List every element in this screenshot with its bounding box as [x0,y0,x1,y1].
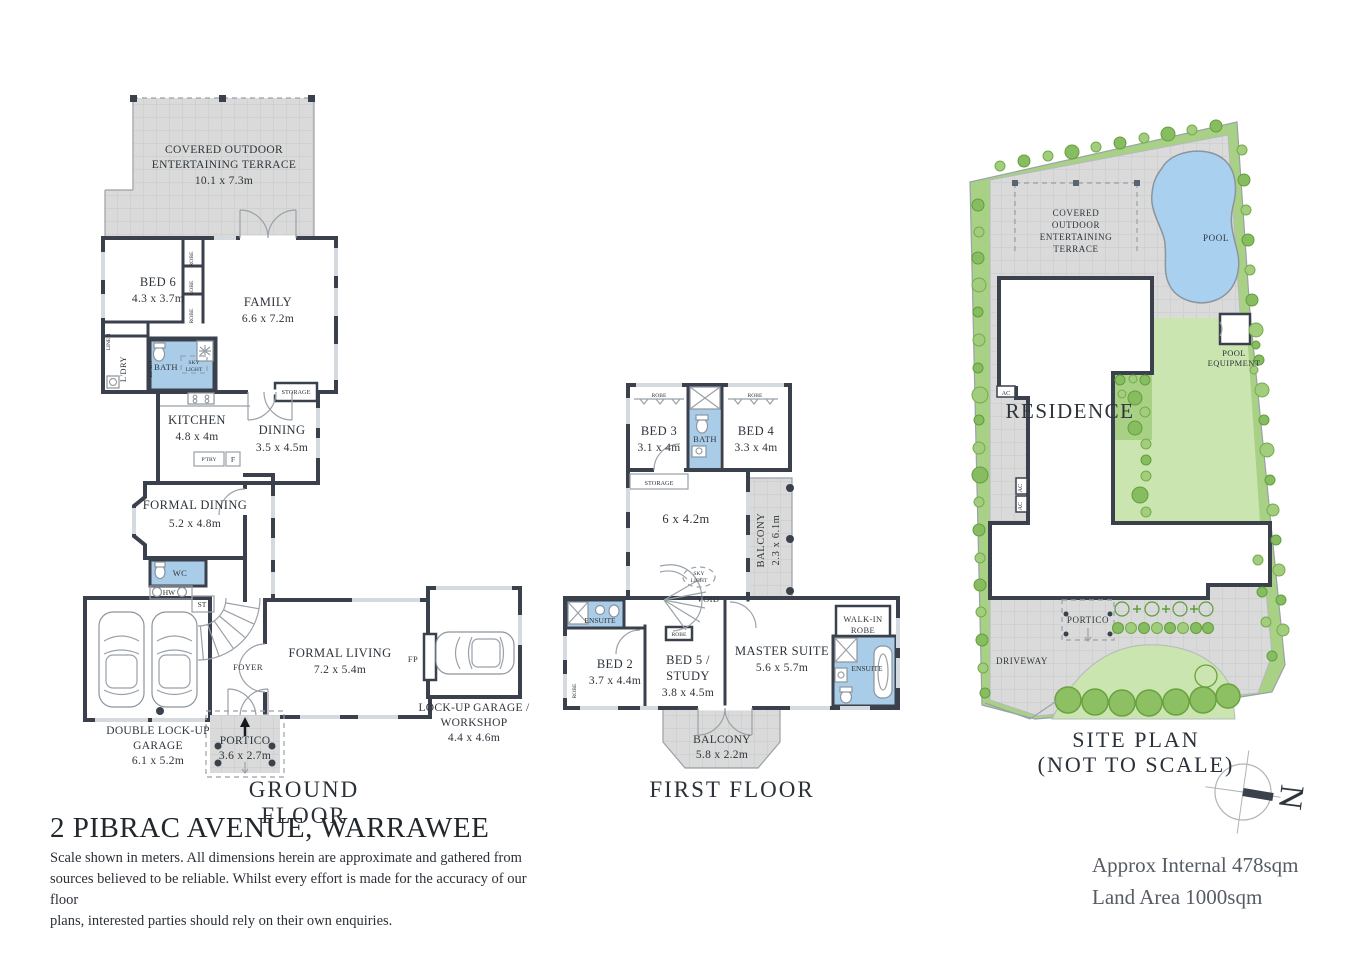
dining-label: DINING [259,423,306,437]
front-balcony-label: BALCONY [693,734,751,746]
pool-equipment-label: EQUIPMENT [1208,358,1261,368]
site-terrace-label: ENTERTAINING [1040,232,1112,242]
bed5-label: BED 5 / [666,653,710,667]
kitchen-dims: 4.8 x 4m [176,431,219,443]
bath-label: BATH [693,434,717,444]
car-icon [99,612,144,707]
fridge-label: F [231,455,235,464]
formal-living-dims: 7.2 x 5.4m [314,664,366,676]
fireplace-icon [424,634,436,680]
first-floor-walls [565,385,898,768]
disclaimer-line: Scale shown in meters. All dimensions he… [50,848,550,869]
land-area: Land Area 1000sqm [1092,882,1298,914]
ground-floor-plan: COVERED OUTDOOR ENTERTAINING TERRACE 10.… [85,95,530,777]
first-floor-plan: ROBE ROBE BED 3 3.1 x 4m BATH BED 4 3.3 … [565,385,898,768]
skylight-label: LIGHT [691,578,708,584]
site-plan-title: SITE PLAN [1036,727,1236,753]
storage-label: STORAGE [282,389,311,396]
kitchen-label: KITCHEN [168,413,226,427]
walk-in-robe-label: WALK-IN [843,614,882,624]
wc-label: WC [173,568,188,578]
formal-dining-label: FORMAL DINING [143,498,247,512]
driveway-label: DRIVEWAY [996,656,1048,666]
robe-label: ROBE [189,280,195,296]
portico-dims: 3.6 x 2.7m [219,750,271,762]
bed5-label: STUDY [666,669,710,683]
site-terrace-label: OUTDOOR [1052,220,1100,230]
car-icon [436,632,514,674]
landing-dims: 6 x 4.2m [662,512,709,526]
linen-label: LINEN [148,361,154,378]
terrace-label: ENTERTAINING TERRACE [152,159,296,171]
side-balcony-dims: 2.3 x 6.1m [771,515,782,566]
workshop-garage-label: WORKSHOP [441,717,508,729]
master-label: MASTER SUITE [735,644,829,658]
pool-equipment-shed [1220,314,1250,344]
ensuite-label: ENSUITE [851,664,883,673]
family-label: FAMILY [244,295,292,309]
ac-label: AC [1002,390,1011,397]
double-garage-label: GARAGE [133,740,183,752]
walk-in-robe-label: ROBE [851,625,875,635]
double-garage-label: DOUBLE LOCK-UP [106,725,210,737]
storage-label: STORAGE [645,480,674,487]
skylight-label: SKY [188,360,199,366]
double-garage-dims: 6.1 x 5.2m [132,755,184,767]
void-label: VOID [697,594,720,604]
robe-label: ROBE [672,632,688,638]
ac-label: AC [1017,502,1024,511]
pool-equipment-label: POOL [1222,348,1246,358]
skylight-label: LIGHT [186,367,203,373]
first-floor-title: FIRST FLOOR [632,777,832,803]
ensuite-label: ENSUITE [584,616,616,625]
family-dims: 6.6 x 7.2m [242,313,294,325]
formal-dining-dims: 5.2 x 4.8m [169,518,221,530]
robe-label: ROBE [748,393,764,399]
property-address: 2 PIBRAC AVENUE, WARRAWEE [50,812,489,845]
floorplan-page: COVERED OUTDOOR ENTERTAINING TERRACE 10.… [0,0,1358,960]
foyer-label: FOYER [233,662,263,672]
robe-label: ROBE [652,393,668,399]
bed5-dims: 3.8 x 4.5m [662,687,714,699]
workshop-garage-dims: 4.4 x 4.6m [448,732,500,744]
terrace-label: COVERED OUTDOOR [165,144,283,156]
front-balcony-dims: 5.8 x 2.2m [696,749,748,761]
car-icon [152,612,197,707]
pantry-label: P'TRY [202,457,217,463]
robe-label: ROBE [572,683,578,699]
hw-label: HW [163,588,176,597]
robe-label: ROBE [189,251,195,267]
internal-area: Approx Internal 478sqm [1092,850,1298,882]
formal-living-label: FORMAL LIVING [289,646,392,660]
disclaimer-line: sources believed to be reliable. Whilst … [50,869,550,911]
site-terrace-label: TERRACE [1053,244,1098,254]
compass-north-label: N [1271,783,1311,812]
bed4-dims: 3.3 x 4m [735,442,778,454]
bed3-dims: 3.1 x 4m [638,442,681,454]
ac-label: AC [1017,484,1024,493]
linen-label: LINEN [106,334,112,351]
residence-label: RESIDENCE [1006,399,1135,423]
terrace-dims: 10.1 x 7.3m [195,175,253,187]
master-dims: 5.6 x 5.7m [756,662,808,674]
bed6-dims: 4.3 x 3.7m [132,293,184,305]
st-label: ST [198,600,207,609]
bed6-label: BED 6 [140,275,176,289]
site-portico-label: PORTICO [1067,615,1109,625]
bed2-dims: 3.7 x 4.4m [589,675,641,687]
disclaimer-line: plans, interested parties should rely on… [50,911,550,932]
site-terrace-label: COVERED [1053,208,1100,218]
workshop-garage-label: LOCK-UP GARAGE / [418,702,530,714]
bed3-label: BED 3 [641,424,677,438]
side-balcony-label: BALCONY [756,513,767,568]
bath-label: BATH [154,362,178,372]
dining-dims: 3.5 x 4.5m [256,442,308,454]
site-plan-subtitle: (NOT TO SCALE) [1036,752,1236,778]
robe-label: ROBE [189,308,195,324]
skylight-label: SKY [693,571,704,577]
bed2-label: BED 2 [597,657,633,671]
stove-icon [188,393,214,404]
portico-label: PORTICO [220,735,271,747]
laundry-label: L'DRY [118,356,128,382]
fp-label: FP [408,654,418,664]
bed4-label: BED 4 [738,424,775,438]
pool-label: POOL [1203,233,1229,243]
